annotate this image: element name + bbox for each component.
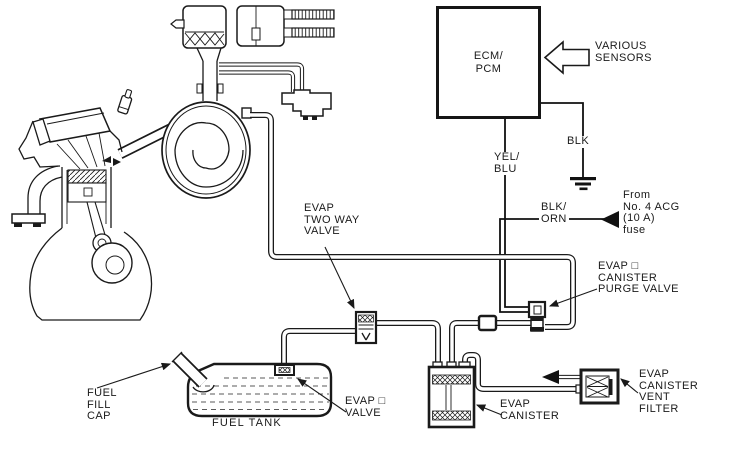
various-sensors-arrow	[545, 42, 589, 73]
vent-filter-label: EVAP CANISTER VENT FILTER	[639, 369, 698, 415]
intake-plenum-scroll	[162, 102, 251, 198]
exhaust-pipe	[12, 166, 62, 227]
fuse-source-label: From No. 4 ACG (10 A) fuse	[623, 190, 680, 236]
crankcase	[30, 228, 152, 320]
valve-cover	[33, 108, 110, 145]
leader-canister	[477, 405, 502, 415]
air-cleaner	[171, 6, 226, 101]
wire-blk-label: BLK	[565, 136, 591, 148]
wire-yel-blu-label: YEL/ BLU	[492, 152, 522, 175]
leader-vent-filter	[621, 379, 638, 393]
wire-yel-blu	[505, 119, 529, 307]
intake-hoses	[292, 10, 334, 37]
vacuum-hose-lines	[219, 65, 302, 93]
wire-blk-orn-label: BLK/ ORN	[539, 202, 569, 225]
leader-fill-cap	[97, 364, 170, 388]
vapor-tubes	[250, 115, 581, 389]
engine-illustration	[12, 6, 334, 320]
various-sensors-label: VARIOUS SENSORS	[595, 41, 652, 64]
evap-canister-drawing	[429, 362, 474, 427]
purge-valve-label: EVAP □ CANISTER PURGE VALVE	[598, 261, 679, 296]
evap-valve-label: EVAP □ VALVE	[345, 396, 386, 419]
canister-label: EVAP CANISTER	[500, 399, 559, 422]
piston-crank	[62, 167, 132, 283]
resonator	[237, 6, 292, 46]
fuel-tank-drawing	[172, 352, 331, 416]
evap-valve-drawing	[275, 365, 294, 375]
fuse-feed-arrow	[601, 211, 619, 228]
evap-system-diagram: ECM/ PCM VARIOUS SENSORS BLK YEL/ BLU BL…	[0, 0, 736, 462]
two-way-valve-label: EVAP TWO WAY VALVE	[304, 203, 360, 238]
air-flow-arrow	[542, 370, 559, 384]
ecm-pcm-box: ECM/ PCM	[436, 6, 541, 119]
engine-bracket	[282, 90, 331, 120]
purge-valve-drawing	[529, 302, 545, 331]
two-way-valve-drawing	[356, 312, 376, 343]
spark-plug	[117, 88, 134, 114]
ground-symbol	[570, 177, 596, 190]
fuel-fill-cap-label: FUEL FILL CAP	[87, 388, 117, 423]
vent-filter-drawing	[576, 370, 618, 403]
fuel-tank-label: FUEL TANK	[212, 418, 282, 430]
inline-connector	[479, 316, 496, 330]
